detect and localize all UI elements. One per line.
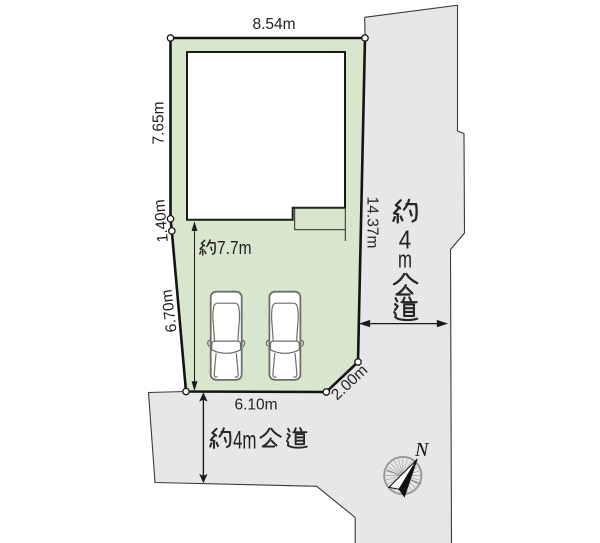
svg-text:m: m <box>398 246 412 273</box>
svg-text:4m: 4m <box>233 427 257 455</box>
svg-text:7.7m: 7.7m <box>217 237 252 258</box>
svg-text:N: N <box>414 439 430 461</box>
svg-text:7.65m: 7.65m <box>151 101 168 144</box>
svg-text:14.37m: 14.37m <box>364 197 381 249</box>
svg-text:6.10m: 6.10m <box>234 397 277 414</box>
svg-text:8.54m: 8.54m <box>252 16 295 33</box>
